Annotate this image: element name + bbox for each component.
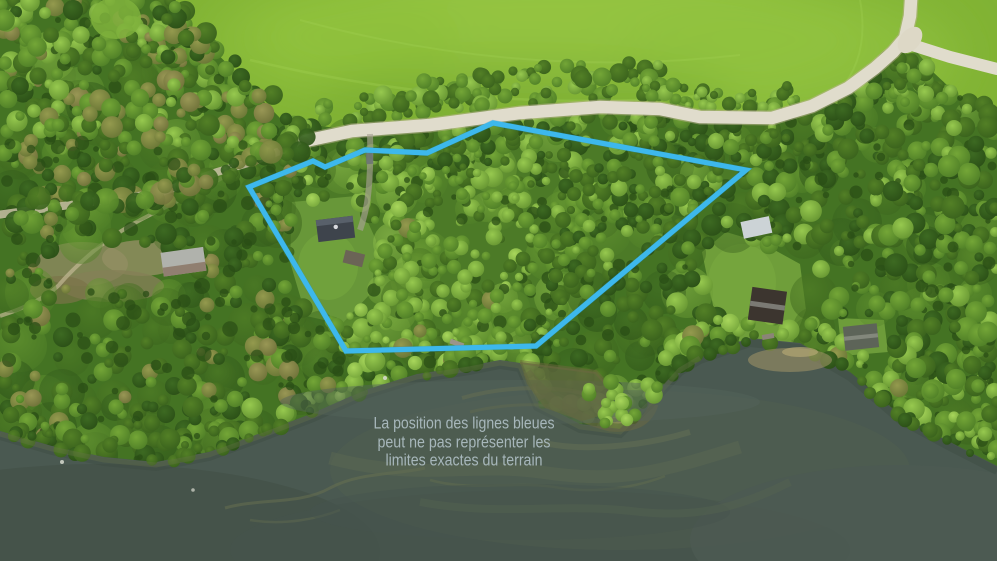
svg-text:peut ne pas représenter les: peut ne pas représenter les: [378, 433, 551, 452]
svg-text:limites exactes du terrain: limites exactes du terrain: [386, 451, 543, 470]
svg-text:La position des lignes bleues: La position des lignes bleues: [374, 414, 555, 433]
